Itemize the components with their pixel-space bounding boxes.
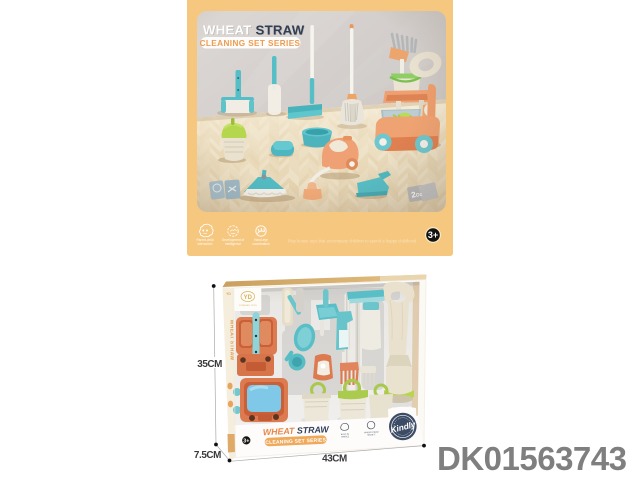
svg-text:CLEANING SET SERIES: CLEANING SET SERIES [200,39,301,48]
svg-text:intelligence: intelligence [225,242,241,246]
svg-text:3+: 3+ [428,230,438,240]
svg-text:YD: YD [226,292,231,296]
svg-text:Play house toys that accompany: Play house toys that accompany children … [288,239,417,244]
svg-text:43CM: 43CM [322,454,347,465]
svg-text:YD: YD [244,295,253,301]
svg-text:interaction: interaction [198,242,213,246]
svg-text:35CM: 35CM [197,359,222,370]
svg-text:YONGDELI TOYS: YONGDELI TOYS [239,305,257,307]
svg-text:coordination: coordination [252,242,270,246]
svg-text:HANDLE: HANDLE [341,435,350,438]
svg-text:WHEAT STRAW: WHEAT STRAW [203,22,305,37]
svg-text:MADE IT: MADE IT [367,433,376,436]
svg-text:3+: 3+ [243,439,249,445]
svg-text:7.5CM: 7.5CM [194,450,221,461]
